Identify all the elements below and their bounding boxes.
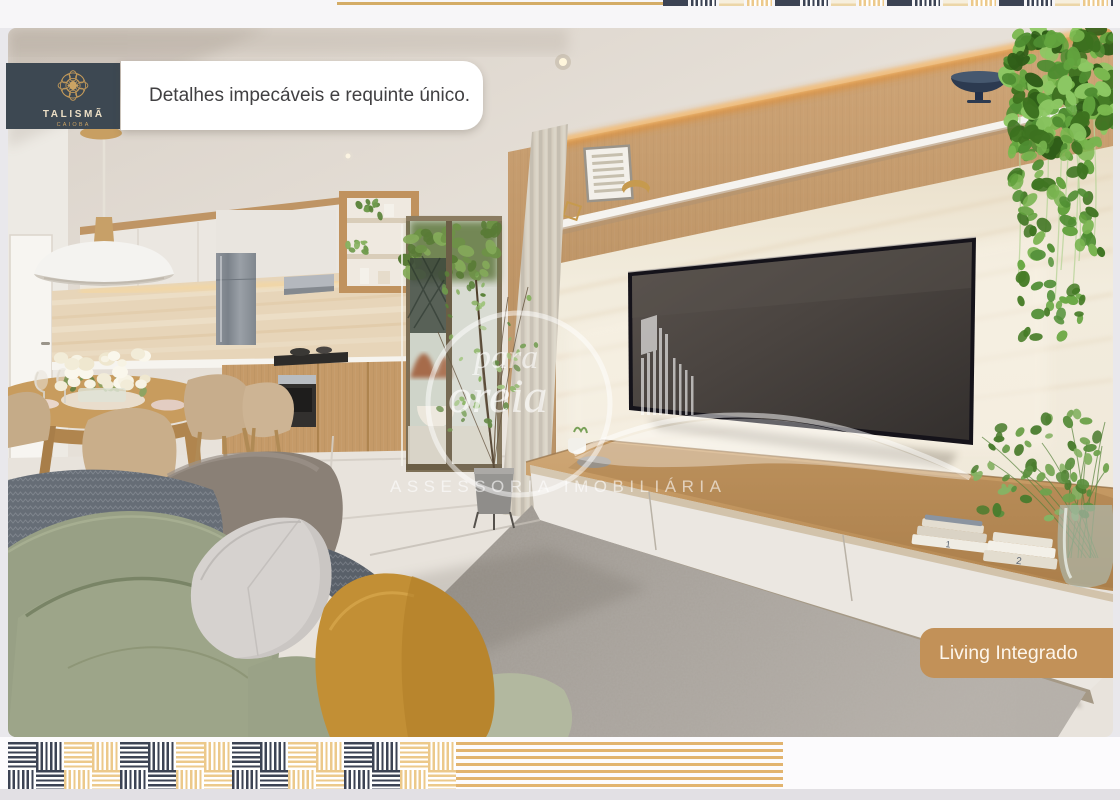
svg-text:oreia: oreia (448, 370, 548, 423)
svg-text:ASSESSORIA IMOBILIÁRIA: ASSESSORIA IMOBILIÁRIA (390, 477, 726, 496)
